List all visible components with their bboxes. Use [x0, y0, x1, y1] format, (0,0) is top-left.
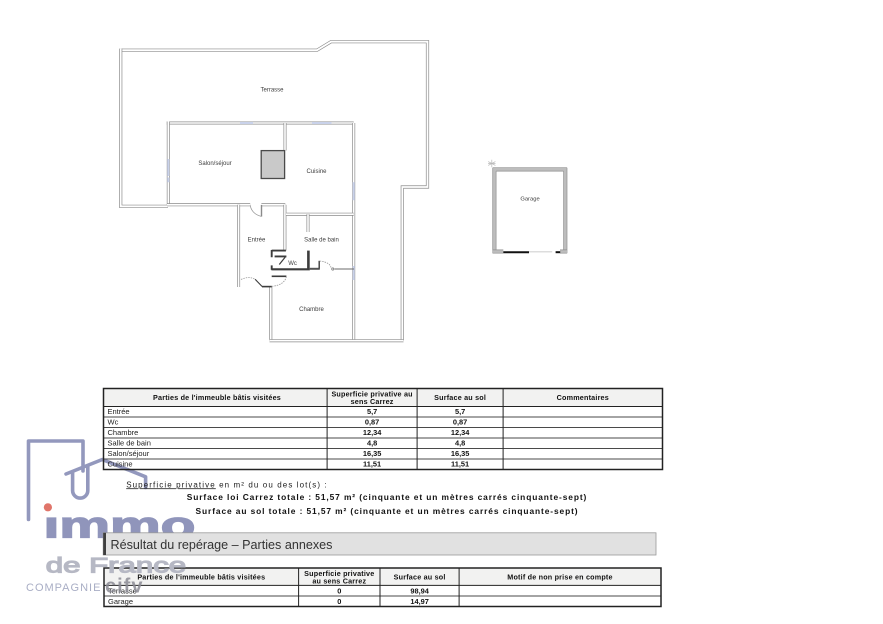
- svg-text:0: 0: [337, 586, 341, 595]
- svg-text:5,7: 5,7: [367, 407, 377, 416]
- svg-text:au sens Carrez: au sens Carrez: [312, 577, 366, 586]
- svg-text:Motif de non prise en compte: Motif de non prise en compte: [507, 573, 612, 582]
- svg-text:cifv: cifv: [105, 576, 143, 598]
- svg-text:Salle de bain: Salle de bain: [108, 439, 151, 448]
- svg-text:COMPAGNIE: COMPAGNIE: [26, 582, 101, 594]
- svg-text:0,87: 0,87: [453, 418, 467, 427]
- svg-text:sens Carrez: sens Carrez: [351, 397, 394, 406]
- svg-text:Entrée: Entrée: [108, 407, 130, 416]
- svg-text:98,94: 98,94: [410, 586, 429, 595]
- svg-text:Wc: Wc: [108, 418, 119, 427]
- svg-text:0: 0: [337, 597, 341, 606]
- svg-text:0,87: 0,87: [365, 418, 379, 427]
- svg-text:16,35: 16,35: [363, 449, 382, 458]
- svg-text:Surface au sol totale : 51,57: Surface au sol totale : 51,57 m² (cinqua…: [196, 506, 579, 516]
- svg-text:Commentaires: Commentaires: [557, 393, 609, 402]
- svg-text:5,7: 5,7: [455, 407, 465, 416]
- svg-text:Entrée: Entrée: [248, 237, 266, 243]
- svg-text:Superficie privative en m² du: Superficie privative en m² du ou des lot…: [126, 480, 328, 489]
- svg-text:14,97: 14,97: [410, 597, 429, 606]
- svg-text:Chambre: Chambre: [299, 307, 324, 313]
- svg-text:Salle de bain: Salle de bain: [304, 237, 339, 243]
- svg-text:Surface loi Carrez totale : 51: Surface loi Carrez totale : 51,57 m² (ci…: [187, 492, 588, 502]
- svg-text:Salon/séjour: Salon/séjour: [198, 161, 231, 167]
- svg-text:Chambre: Chambre: [108, 428, 139, 437]
- svg-text:11,51: 11,51: [363, 460, 381, 469]
- svg-text:Résultat du repérage – Parties: Résultat du repérage – Parties annexes: [111, 538, 333, 552]
- svg-text:16,35: 16,35: [451, 449, 470, 458]
- svg-text:Cuisine: Cuisine: [108, 460, 133, 469]
- svg-text:4,8: 4,8: [367, 439, 377, 448]
- svg-text:Salon/séjour: Salon/séjour: [108, 449, 150, 458]
- svg-text:4,8: 4,8: [455, 439, 465, 448]
- svg-text:12,34: 12,34: [363, 428, 382, 437]
- svg-text:Garage: Garage: [520, 197, 539, 203]
- svg-text:de France: de France: [46, 553, 186, 577]
- svg-text:Surface au sol: Surface au sol: [434, 393, 486, 402]
- svg-text:11,51: 11,51: [451, 460, 469, 469]
- svg-text:12,34: 12,34: [451, 428, 470, 437]
- svg-text:Parties de l'immeuble bâtis vi: Parties de l'immeuble bâtis visitées: [153, 393, 281, 402]
- svg-text:Cuisine: Cuisine: [306, 169, 327, 175]
- svg-text:Garage: Garage: [108, 597, 133, 606]
- svg-text:Surface au sol: Surface au sol: [394, 573, 446, 582]
- svg-text:Terrasse: Terrasse: [260, 87, 284, 93]
- svg-text:Wc: Wc: [288, 261, 297, 267]
